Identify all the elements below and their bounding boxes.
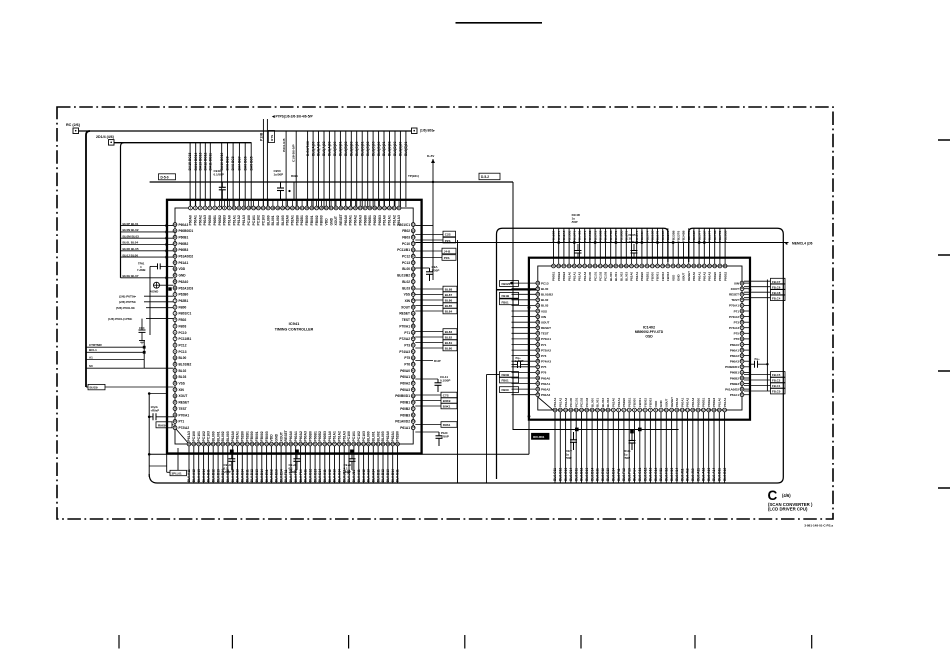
svg-text:XIN: XIN [541, 315, 546, 319]
svg-text:BUS9: BUS9 [90, 386, 98, 390]
svg-text:BL87: BL87 [445, 293, 453, 297]
svg-text:BL0.H12: BL0.H12 [328, 469, 332, 482]
svg-text:P60B1: P60B1 [179, 236, 189, 240]
svg-text:TP(941): TP(941) [408, 174, 419, 178]
svg-text:P61A1: P61A1 [553, 397, 557, 407]
svg-text:RESET: RESET [399, 312, 410, 316]
svg-text:BCL1: BCL1 [89, 348, 97, 352]
svg-text:P60A0: P60A0 [189, 215, 193, 225]
svg-text:P61A1: P61A1 [400, 426, 410, 430]
svg-text:XOUT: XOUT [279, 431, 283, 441]
svg-text:IC1402: IC1402 [643, 326, 655, 330]
svg-text:BL000: BL000 [367, 431, 371, 441]
svg-text:BA13 BC13: BA13 BC13 [198, 153, 202, 171]
svg-text:BL0.D11: BL0.D11 [574, 468, 578, 481]
svg-text:(2/6) P0T0⊳: (2/6) P0T0⊳ [119, 294, 137, 298]
svg-text:PC103: PC103 [362, 431, 366, 441]
svg-text:P62A1: P62A1 [291, 215, 295, 225]
svg-text:FB002: FB002 [315, 215, 319, 225]
svg-text:P72/A2: P72/A2 [179, 426, 190, 430]
svg-text:7+R9B: 7+R9B [137, 268, 145, 272]
svg-text:P60B0: P60B0 [308, 431, 312, 441]
svg-text:PC103: PC103 [604, 271, 608, 281]
svg-text:P60A0: P60A0 [730, 343, 740, 347]
svg-text:P73: P73 [541, 354, 547, 358]
svg-text:FB000: FB000 [250, 431, 254, 441]
svg-text:BL0.B12: BL0.B12 [211, 469, 215, 482]
svg-text:FB03: FB03 [179, 324, 187, 328]
svg-text:BL0.B14: BL0.B14 [391, 469, 395, 482]
svg-text:FB17B3: FB17B3 [609, 230, 613, 242]
svg-text:P60B1: P60B1 [213, 215, 217, 225]
svg-text:BL003: BL003 [281, 215, 285, 225]
svg-text:BL00: BL00 [541, 287, 549, 291]
svg-text:PC103: PC103 [261, 215, 265, 225]
svg-text:BA8 BC8: BA8 BC8 [231, 156, 235, 170]
svg-text:FB23B6: FB23B6 [671, 230, 675, 242]
svg-text:XOUT: XOUT [665, 398, 669, 407]
svg-text:BL0.H11: BL0.H11 [323, 469, 327, 482]
svg-text:P60B1: P60B1 [368, 215, 372, 225]
svg-text:P62B0: P62B0 [396, 431, 400, 441]
svg-text:BL86: BL86 [445, 299, 453, 303]
svg-text:P61A0: P61A0 [228, 215, 232, 225]
svg-text:P73: P73 [734, 321, 740, 325]
svg-text:BL0(B)00: BL0(B)00 [333, 141, 337, 156]
svg-text:P72/A2: P72/A2 [399, 337, 410, 341]
svg-text:P60A2: P60A2 [354, 215, 358, 225]
svg-text:P60B0: P60B0 [713, 271, 717, 281]
svg-text:P61A2: P61A2 [392, 215, 396, 225]
svg-text:P71: P71 [541, 343, 547, 347]
svg-text:BL0.A12: BL0.A12 [702, 468, 706, 481]
svg-text:P61A1: P61A1 [232, 215, 236, 225]
svg-text:BL0.C11: BL0.C11 [553, 468, 557, 481]
svg-text:XIN: XIN [179, 388, 185, 392]
svg-text:P60B2: P60B2 [400, 407, 410, 411]
svg-text:BL0.C13: BL0.C13 [564, 468, 568, 481]
svg-text:P60A1: P60A1 [680, 397, 684, 407]
svg-text:BL0.D13: BL0.D13 [255, 469, 259, 482]
svg-text:PC12: PC12 [179, 343, 187, 347]
svg-text:AGND: AGND [150, 289, 158, 293]
svg-text:BL0.H14: BL0.H14 [338, 469, 342, 482]
svg-text:RC (2/6): RC (2/6) [66, 123, 81, 127]
svg-text:BL0.A14: BL0.A14 [372, 469, 376, 482]
svg-text:P74/A3: P74/A3 [729, 326, 739, 330]
svg-text:P72/A2: P72/A2 [729, 315, 739, 319]
svg-text:BL01/B2: BL01/B2 [397, 274, 410, 278]
svg-text:BL0.F14: BL0.F14 [633, 468, 637, 481]
svg-text:GND: GND [329, 217, 333, 225]
svg-text:P61A2: P61A2 [237, 215, 241, 225]
svg-text:P61A2: P61A2 [559, 397, 563, 407]
svg-text:P60A3: P60A3 [203, 215, 207, 225]
svg-text:FB18B3: FB18B3 [619, 230, 623, 242]
svg-text:P60A2: P60A2 [299, 431, 303, 441]
svg-text:P60A3: P60A3 [400, 388, 410, 392]
svg-text:FB.C0: FB.C0 [772, 390, 781, 394]
svg-text:C1/8-5/6-5/P: C1/8-5/6-5/P [292, 144, 296, 162]
svg-text:PC10: PC10 [179, 331, 187, 335]
svg-text:TEST: TEST [402, 318, 410, 322]
svg-text:P61A1: P61A1 [388, 215, 392, 225]
svg-text:VSS: VSS [404, 293, 410, 297]
svg-text:XOUT: XOUT [541, 321, 550, 325]
svg-text:PC100: PC100 [569, 397, 573, 407]
svg-text:BL0.B12: BL0.B12 [381, 469, 385, 482]
svg-text:IC941: IC941 [289, 321, 300, 326]
svg-text:BL82: BL82 [445, 336, 453, 340]
svg-text:FB22T5: FB22T5 [666, 231, 670, 242]
svg-text:FB20T4: FB20T4 [645, 231, 649, 242]
svg-text:P60A2: P60A2 [703, 271, 707, 281]
svg-text:BA14 BC14: BA14 BC14 [194, 153, 198, 171]
svg-text:FB28B8: FB28B8 [723, 230, 727, 242]
svg-text:FB24B6: FB24B6 [682, 230, 686, 242]
svg-text:P60A2: P60A2 [541, 387, 551, 391]
svg-text:/50P: /50P [624, 456, 630, 460]
svg-text:FB18T3: FB18T3 [625, 231, 629, 242]
svg-text:BL0.A13: BL0.A13 [367, 469, 371, 482]
svg-text:VSS: VSS [541, 309, 547, 313]
svg-text:BA15 BC15: BA15 BC15 [188, 153, 192, 171]
svg-text:P75: P75 [734, 332, 740, 336]
svg-text:FB15B2: FB15B2 [588, 230, 592, 242]
svg-text:3-861-148-01-C-PS.a: 3-861-148-01-C-PS.a [804, 524, 833, 528]
svg-text:P73: P73 [404, 343, 410, 347]
svg-text:BL0.C12: BL0.C12 [231, 469, 235, 482]
svg-text:1/50P: 1/50P [441, 434, 449, 438]
svg-text:BL0.G13: BL0.G13 [649, 467, 653, 481]
svg-text:MEMCL4 (2/6: MEMCL4 (2/6 [792, 241, 813, 245]
svg-text:FB003: FB003 [649, 398, 653, 407]
svg-text:BL0L BL04: BL0L BL04 [123, 241, 139, 245]
svg-text:P60A0: P60A0 [289, 431, 293, 441]
svg-text:P70/A1: P70/A1 [541, 337, 551, 341]
svg-text:P62A1: P62A1 [236, 431, 240, 441]
svg-text:BL0(A)01: BL0(A)01 [317, 141, 321, 156]
svg-text:FB16B2: FB16B2 [599, 230, 603, 242]
svg-text:P71: P71 [404, 331, 410, 335]
svg-text:D.OUT-00: D.OUT-00 [306, 141, 310, 156]
svg-text:PC10: PC10 [402, 242, 410, 246]
svg-text:MB90092-PFV-XTD: MB90092-PFV-XTD [635, 330, 664, 334]
svg-text:FB.C6: FB.C6 [772, 285, 781, 289]
svg-text:P61A3: P61A3 [342, 431, 346, 441]
svg-text:2D1/4 (4/6): 2D1/4 (4/6) [96, 135, 115, 139]
svg-text:BL01/B2: BL01/B2 [541, 293, 553, 297]
svg-text:BL0.E14: BL0.E14 [612, 468, 616, 481]
svg-text:BL0.D14: BL0.D14 [590, 468, 594, 481]
svg-text:P60B3: P60B3 [730, 382, 740, 386]
svg-text:P62B0: P62B0 [622, 397, 626, 407]
svg-text:PC101: PC101 [352, 431, 356, 441]
svg-text:PC102: PC102 [357, 431, 361, 441]
svg-text:VDD: VDD [270, 434, 274, 442]
svg-text:R9S1: R9S1 [443, 423, 451, 427]
svg-text:BL002: BL002 [376, 431, 380, 441]
svg-text:VDD: VDD [325, 218, 329, 226]
svg-text:BL002: BL002 [619, 272, 623, 281]
svg-text:PC102: PC102 [599, 271, 603, 281]
svg-text:BL0.A11: BL0.A11 [187, 469, 191, 482]
svg-text:BL0.B11: BL0.B11 [376, 469, 380, 482]
svg-text:XOUT: XOUT [401, 305, 410, 309]
svg-text:FB21T5: FB21T5 [656, 231, 660, 242]
svg-text:J4-B: J4-B [444, 250, 451, 254]
svg-text:FB26T7: FB26T7 [708, 231, 712, 242]
svg-text:FB020: FB020 [502, 282, 511, 286]
svg-text:FB.C2: FB.C2 [772, 379, 781, 383]
svg-text:P61A1: P61A1 [573, 271, 577, 281]
svg-text:1u/50P: 1u/50P [515, 359, 524, 363]
svg-text:BA5 BC5: BA5 BC5 [249, 156, 253, 170]
svg-text:BL84: BL84 [445, 310, 453, 314]
svg-text:FB003: FB003 [320, 215, 324, 225]
svg-text:P0S: P0S [444, 256, 450, 260]
svg-text:BL0(B)03: BL0(B)03 [350, 141, 354, 156]
svg-text:BL003: BL003 [625, 272, 629, 281]
svg-text:BL0.F12: BL0.F12 [622, 468, 626, 481]
svg-text:PC100: PC100 [588, 271, 592, 281]
svg-text:FB26B7: FB26B7 [703, 230, 707, 242]
svg-text:P60A1: P60A1 [349, 215, 353, 225]
svg-text:P60B0: P60B0 [363, 215, 367, 225]
svg-text:BL0.E14: BL0.E14 [279, 469, 283, 482]
svg-text:PC11/B1: PC11/B1 [397, 248, 410, 252]
svg-text:BL0.J13: BL0.J13 [691, 468, 695, 481]
svg-text:FB17T3: FB17T3 [614, 231, 618, 242]
svg-text:P61A1: P61A1 [333, 431, 337, 441]
svg-text:P60A0: P60A0 [675, 397, 679, 407]
svg-text:FB20B4: FB20B4 [640, 230, 644, 242]
svg-text:P61A3: P61A3 [242, 215, 246, 225]
svg-text:BL002: BL002 [276, 215, 280, 225]
svg-text:P61A3: P61A3 [583, 271, 587, 281]
svg-text:(LCD DRIVER CPU): (LCD DRIVER CPU) [768, 507, 808, 512]
svg-text:P60B0/D1: P60B0/D1 [725, 365, 739, 369]
svg-text:BL0N BL02: BL0N BL02 [123, 228, 139, 232]
svg-text:RESET: RESET [541, 326, 551, 330]
svg-text:P61A1: P61A1 [730, 393, 740, 397]
svg-text:BL0(C)03: BL0(C)03 [371, 141, 375, 156]
svg-text:P62A1: P62A1 [391, 431, 395, 441]
svg-text:BL0.A14: BL0.A14 [712, 468, 716, 481]
svg-text:BA7 BC7: BA7 BC7 [238, 156, 242, 170]
svg-text:FB01: FB01 [502, 300, 509, 304]
svg-text:BL002: BL002 [601, 398, 605, 407]
svg-text:TEST: TEST [541, 332, 549, 336]
svg-text:FB25B7: FB25B7 [692, 230, 696, 242]
svg-text:BL0.C13: BL0.C13 [236, 469, 240, 482]
svg-text:FB00: FB00 [179, 305, 187, 309]
svg-text:FB000: FB000 [651, 272, 655, 281]
svg-text:BL0.F14: BL0.F14 [299, 469, 303, 482]
svg-text:FB001: FB001 [638, 398, 642, 407]
svg-text:BL0(C)02: BL0(C)02 [366, 141, 370, 156]
svg-text:PC102: PC102 [580, 397, 584, 407]
svg-text:BL0(C)01: BL0(C)01 [360, 141, 364, 156]
svg-text:FB13T1: FB13T1 [573, 231, 577, 242]
svg-text:P74/A3: P74/A3 [541, 360, 551, 364]
svg-text:BL0.G13: BL0.G13 [313, 469, 317, 483]
svg-text:+50P: +50P [344, 470, 351, 474]
svg-text:P60A3: P60A3 [358, 215, 362, 225]
svg-text:RESET: RESET [284, 429, 288, 441]
svg-text:P60A0: P60A0 [692, 271, 696, 281]
svg-text:R/C.R01: R/C.R01 [533, 435, 544, 439]
svg-text:P60A1: P60A1 [400, 375, 410, 379]
svg-text:P61A2: P61A2 [338, 431, 342, 441]
svg-text:BL00: BL00 [402, 267, 410, 271]
svg-text:GND: GND [275, 433, 279, 441]
svg-text:+50P: +50P [224, 470, 231, 474]
svg-text:BL0(A)02: BL0(A)02 [322, 141, 326, 156]
svg-text:BL0.G12: BL0.G12 [643, 467, 647, 481]
svg-text:P76: P76 [734, 337, 740, 341]
svg-text:BL02: BL02 [179, 369, 187, 373]
svg-text:BL0.G14: BL0.G14 [318, 469, 322, 483]
svg-text:P62B0: P62B0 [295, 215, 299, 225]
svg-text:FB.C5: FB.C5 [772, 373, 781, 377]
svg-text:BL0.C11: BL0.C11 [396, 469, 400, 482]
svg-text:BL0.D13: BL0.D13 [585, 468, 589, 481]
svg-text:0.1/50P: 0.1/50P [440, 378, 450, 382]
svg-text:FB.C1: FB.C1 [772, 384, 781, 388]
svg-text:P62A0: P62A0 [386, 431, 390, 441]
svg-text:C: C [768, 488, 778, 503]
svg-text:P60B3: P60B3 [712, 397, 716, 407]
svg-text:GND: GND [179, 274, 187, 278]
svg-text:VDD: VDD [179, 267, 186, 271]
svg-text:GND: GND [659, 400, 663, 408]
svg-text:BL0(D)02: BL0(D)02 [388, 141, 392, 156]
svg-text:BL0.G12: BL0.G12 [308, 469, 312, 483]
svg-text:XOUT: XOUT [179, 394, 188, 398]
svg-text:P60B3: P60B3 [378, 215, 382, 225]
svg-text:P60B2: P60B2 [557, 271, 561, 281]
svg-text:(5/6) P0XL0⊳: (5/6) P0XL0⊳ [116, 306, 136, 310]
svg-text:BL0.A12: BL0.A12 [362, 469, 366, 482]
svg-text:BL0.E13: BL0.E13 [606, 468, 610, 481]
svg-text:XIN: XIN [734, 281, 739, 285]
svg-text:FB23T6: FB23T6 [677, 231, 681, 242]
svg-text:1/50P: 1/50P [432, 268, 440, 272]
svg-text:P60B1: P60B1 [552, 271, 556, 281]
svg-text:XOUT: XOUT [682, 272, 686, 281]
svg-text:BL0.A13: BL0.A13 [197, 469, 201, 482]
svg-text:P60A3: P60A3 [179, 223, 189, 227]
svg-text:FB003: FB003 [265, 431, 269, 441]
svg-text:BL0.H13: BL0.H13 [670, 468, 674, 481]
svg-text:BL0.E12: BL0.E12 [270, 469, 274, 482]
svg-text:BA10 BC10: BA10 BC10 [220, 153, 224, 171]
svg-text:BL0.B13: BL0.B13 [216, 469, 220, 482]
svg-text:PC103: PC103 [207, 431, 211, 441]
svg-text:P60A3: P60A3 [304, 431, 308, 441]
svg-text:BL0.H14: BL0.H14 [675, 468, 679, 481]
svg-text:FB21B5: FB21B5 [651, 230, 655, 242]
svg-text:FB27T8: FB27T8 [718, 231, 722, 242]
svg-text:BL0(E)00: BL0(E)00 [399, 142, 403, 156]
svg-text:BL0(D)03: BL0(D)03 [393, 141, 397, 156]
svg-text:P60B0: P60B0 [696, 397, 700, 407]
svg-text:BL001: BL001 [614, 272, 618, 281]
svg-text:FB001: FB001 [310, 215, 314, 225]
svg-text:C7S: C7S [443, 394, 449, 398]
svg-text:P62B0: P62B0 [179, 293, 189, 297]
svg-text:BL03: BL03 [541, 304, 549, 308]
svg-text:FB14B1: FB14B1 [578, 230, 582, 242]
svg-text:P61A0/D2: P61A0/D2 [395, 420, 410, 424]
svg-text:FB03: FB03 [402, 236, 410, 240]
svg-text:CTRTMR: CTRTMR [89, 343, 102, 347]
svg-text:P61A0: P61A0 [718, 397, 722, 407]
svg-text:BL0K BL05: BL0K BL05 [123, 247, 139, 251]
svg-text:BL0.J13: BL0.J13 [352, 469, 356, 482]
svg-text:BL0.D12: BL0.D12 [250, 469, 254, 482]
svg-text:FB27B8: FB27B8 [713, 230, 717, 242]
svg-text:BL0.H13: BL0.H13 [333, 469, 337, 482]
svg-text:FB1B: FB1B [502, 294, 510, 298]
svg-text:P60B2: P60B2 [723, 271, 727, 281]
svg-text:P60B3: P60B3 [323, 431, 327, 441]
svg-text:BL0.A11: BL0.A11 [696, 468, 700, 481]
svg-text:(2/6) P0T5⊳: (2/6) P0T5⊳ [119, 300, 137, 304]
svg-text:BL0.A14: BL0.A14 [202, 469, 206, 482]
svg-text:BL0(D)00: BL0(D)00 [377, 141, 381, 156]
svg-text:P60A3: P60A3 [691, 397, 695, 407]
svg-text:P60B2: P60B2 [730, 376, 740, 380]
svg-text:FB12A0: FB12A0 [562, 230, 566, 242]
svg-text:FB002: FB002 [643, 398, 647, 407]
svg-text:PC103: PC103 [585, 397, 589, 407]
svg-text:(1/6) B01▸: (1/6) B01▸ [420, 129, 435, 133]
svg-text:P.ID1.R.B: P.ID1.R.B [282, 138, 286, 152]
svg-text:FB24T6: FB24T6 [687, 231, 691, 242]
svg-text:P61A1: P61A1 [179, 261, 189, 265]
svg-text:VDD: VDD [671, 274, 675, 281]
svg-text:P71: P71 [179, 420, 185, 424]
svg-text:P75: P75 [541, 365, 547, 369]
svg-text:BA6 BC6: BA6 BC6 [243, 156, 247, 170]
svg-text:PC100: PC100 [192, 431, 196, 441]
svg-text:/50P: /50P [566, 456, 572, 460]
svg-text:P71: P71 [734, 309, 740, 313]
svg-text:PC100: PC100 [247, 215, 251, 225]
svg-text:BL0.A12: BL0.A12 [192, 469, 196, 482]
svg-text:BL0.G11: BL0.G11 [638, 468, 642, 481]
svg-text:PC13: PC13 [541, 281, 549, 285]
svg-text:P60B2: P60B2 [373, 215, 377, 225]
svg-text:PC101: PC101 [252, 215, 256, 225]
svg-text:FB.C7: FB.C7 [772, 280, 781, 284]
svg-text:BL000: BL000 [266, 215, 270, 225]
svg-text:PC13: PC13 [402, 261, 410, 265]
svg-text:FB000: FB000 [633, 398, 637, 407]
svg-text:P60A1: P60A1 [541, 382, 551, 386]
svg-text:VSS: VSS [179, 382, 185, 386]
svg-text:BL0.A11: BL0.A11 [357, 469, 361, 482]
svg-text:FB0B: FB0B [502, 373, 510, 377]
svg-text:FB02: FB02 [402, 229, 410, 233]
svg-text:P76: P76 [404, 363, 410, 367]
svg-text:P60B1: P60B1 [702, 397, 706, 407]
svg-text:BL0(B)02: BL0(B)02 [344, 141, 348, 156]
svg-text:B0K9: B0K9 [443, 399, 451, 403]
svg-text:BL001: BL001 [216, 431, 220, 441]
